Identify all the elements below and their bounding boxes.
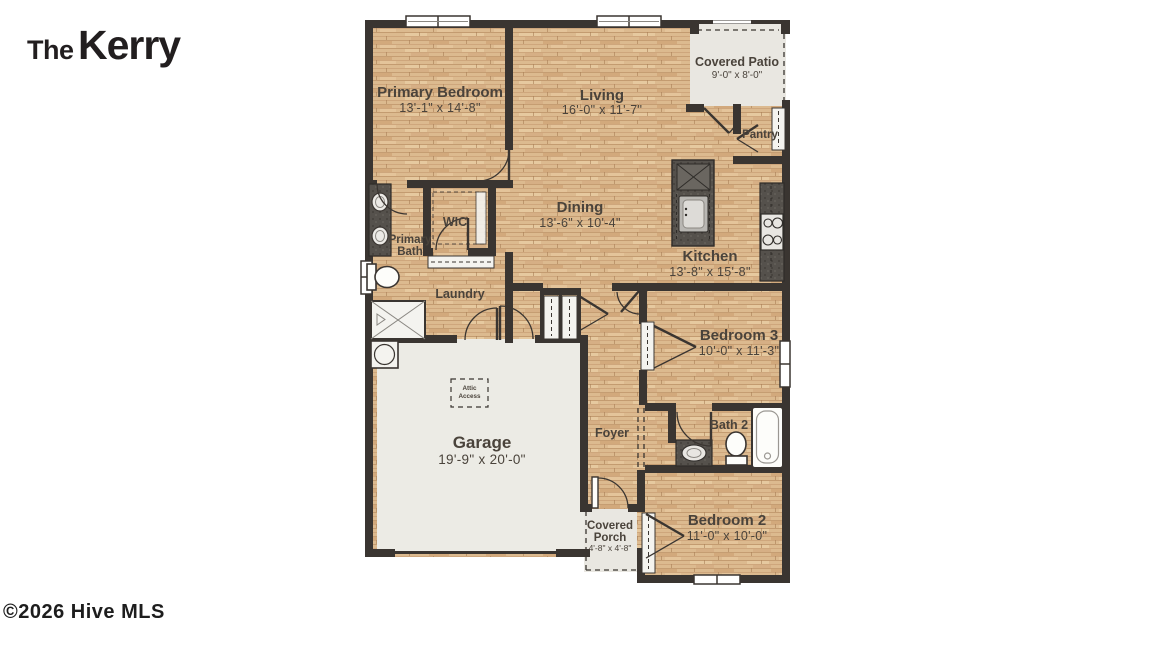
svg-text:Kitchen: Kitchen [682,248,737,265]
exterior-mask [584,572,637,651]
exterior-mask [360,557,584,651]
svg-text:Covered: Covered [587,520,633,532]
label-foyer: Foyer [595,426,629,440]
wall [639,370,647,405]
svg-text:4'-8" x 4'-8": 4'-8" x 4'-8" [589,543,632,553]
label-pantry: Pantry [742,129,778,141]
wall [639,291,647,324]
wall [637,283,790,291]
floorplan-drawing: Attic Access [0,0,1150,651]
label-bedroom3: Bedroom 3 10'-0" x 11'-3" [699,327,779,358]
label-bath2: Bath 2 [710,418,748,432]
wall [637,470,645,512]
bedroom2-closet [642,513,655,573]
wall [668,411,676,443]
svg-text:Living: Living [580,87,624,104]
stove [761,214,783,250]
wall [580,504,592,512]
svg-text:10'-0" x 11'-3": 10'-0" x 11'-3" [699,344,779,358]
wall [686,104,704,112]
svg-text:13'-8" x 15'-8": 13'-8" x 15'-8" [669,265,750,279]
svg-text:Bedroom 3: Bedroom 3 [700,327,778,344]
wall [540,288,581,295]
svg-text:Covered Patio: Covered Patio [695,55,779,69]
label-covered-porch: Covered Porch 4'-8" x 4'-8" [587,520,633,553]
wall [733,156,790,164]
attic-access: Attic Access [451,379,488,407]
kitchen-island [672,160,714,246]
wall [690,20,699,34]
floorplan-page: The Kerry ©2026 Hive MLS Flooring Legend… [0,0,1150,651]
wall [505,20,513,150]
window [780,341,790,387]
wall [580,335,588,512]
garage-door-line [392,551,558,554]
svg-text:9'-0" x 8'-0": 9'-0" x 8'-0" [712,70,763,81]
svg-text:Bath: Bath [397,246,423,258]
svg-text:13'-6" x 10'-4": 13'-6" x 10'-4" [539,216,620,230]
svg-text:16'-0" x 11'-7": 16'-0" x 11'-7" [562,103,642,117]
wall [423,248,433,256]
svg-text:Dining: Dining [557,199,604,216]
label-wic: WIC [443,215,467,229]
svg-text:WIC: WIC [443,215,467,229]
patio-beam [713,21,751,24]
wall [645,403,676,411]
svg-text:Laundry: Laundry [435,287,484,301]
svg-text:Attic: Attic [463,385,477,392]
label-laundry: Laundry [435,287,484,301]
exterior-mask [637,583,797,651]
label-bedroom2: Bedroom 2 11'-0" x 10'-0" [687,512,767,543]
window [406,16,470,27]
wall [513,283,543,291]
wall [488,186,496,252]
svg-text:Primary: Primary [389,234,432,246]
window [597,16,661,27]
wall [781,20,790,34]
toilet [726,432,747,465]
svg-text:Bath 2: Bath 2 [710,418,748,432]
svg-text:Pantry: Pantry [742,129,778,141]
bathtub [752,407,783,468]
bedroom3-closet [641,322,654,370]
hall-closet [540,295,581,340]
svg-text:Access: Access [458,393,481,400]
wall [365,549,395,557]
bath2-vanity [676,440,712,466]
svg-text:13'-1" x 14'-8": 13'-1" x 14'-8" [399,101,480,115]
svg-text:Foyer: Foyer [595,426,629,440]
svg-text:11'-0" x 10'-0": 11'-0" x 10'-0" [687,529,767,543]
svg-text:Garage: Garage [453,433,512,452]
toilet [367,264,399,290]
laundry-shelf [428,256,494,268]
svg-text:19'-9" x 20'-0": 19'-9" x 20'-0" [438,452,526,467]
wall [612,283,637,291]
svg-text:Bedroom 2: Bedroom 2 [688,512,766,529]
wall [468,248,496,256]
wall [556,549,590,557]
water-heater [371,341,398,368]
shower [371,301,425,339]
window [694,575,740,584]
wall [407,180,513,188]
wall [505,252,513,343]
svg-text:Primary Bedroom: Primary Bedroom [377,84,503,101]
